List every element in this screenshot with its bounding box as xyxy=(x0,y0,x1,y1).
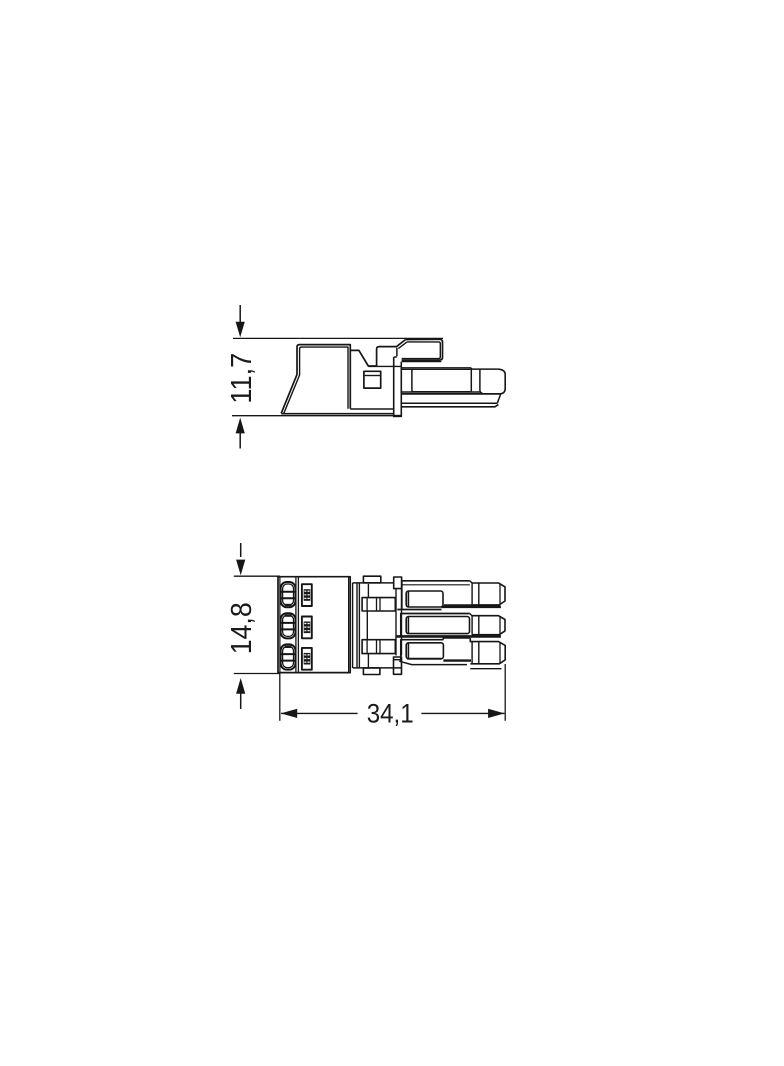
svg-text:34,1: 34,1 xyxy=(367,698,414,728)
svg-text:14,8: 14,8 xyxy=(226,602,258,654)
svg-text:11,7: 11,7 xyxy=(226,353,258,404)
